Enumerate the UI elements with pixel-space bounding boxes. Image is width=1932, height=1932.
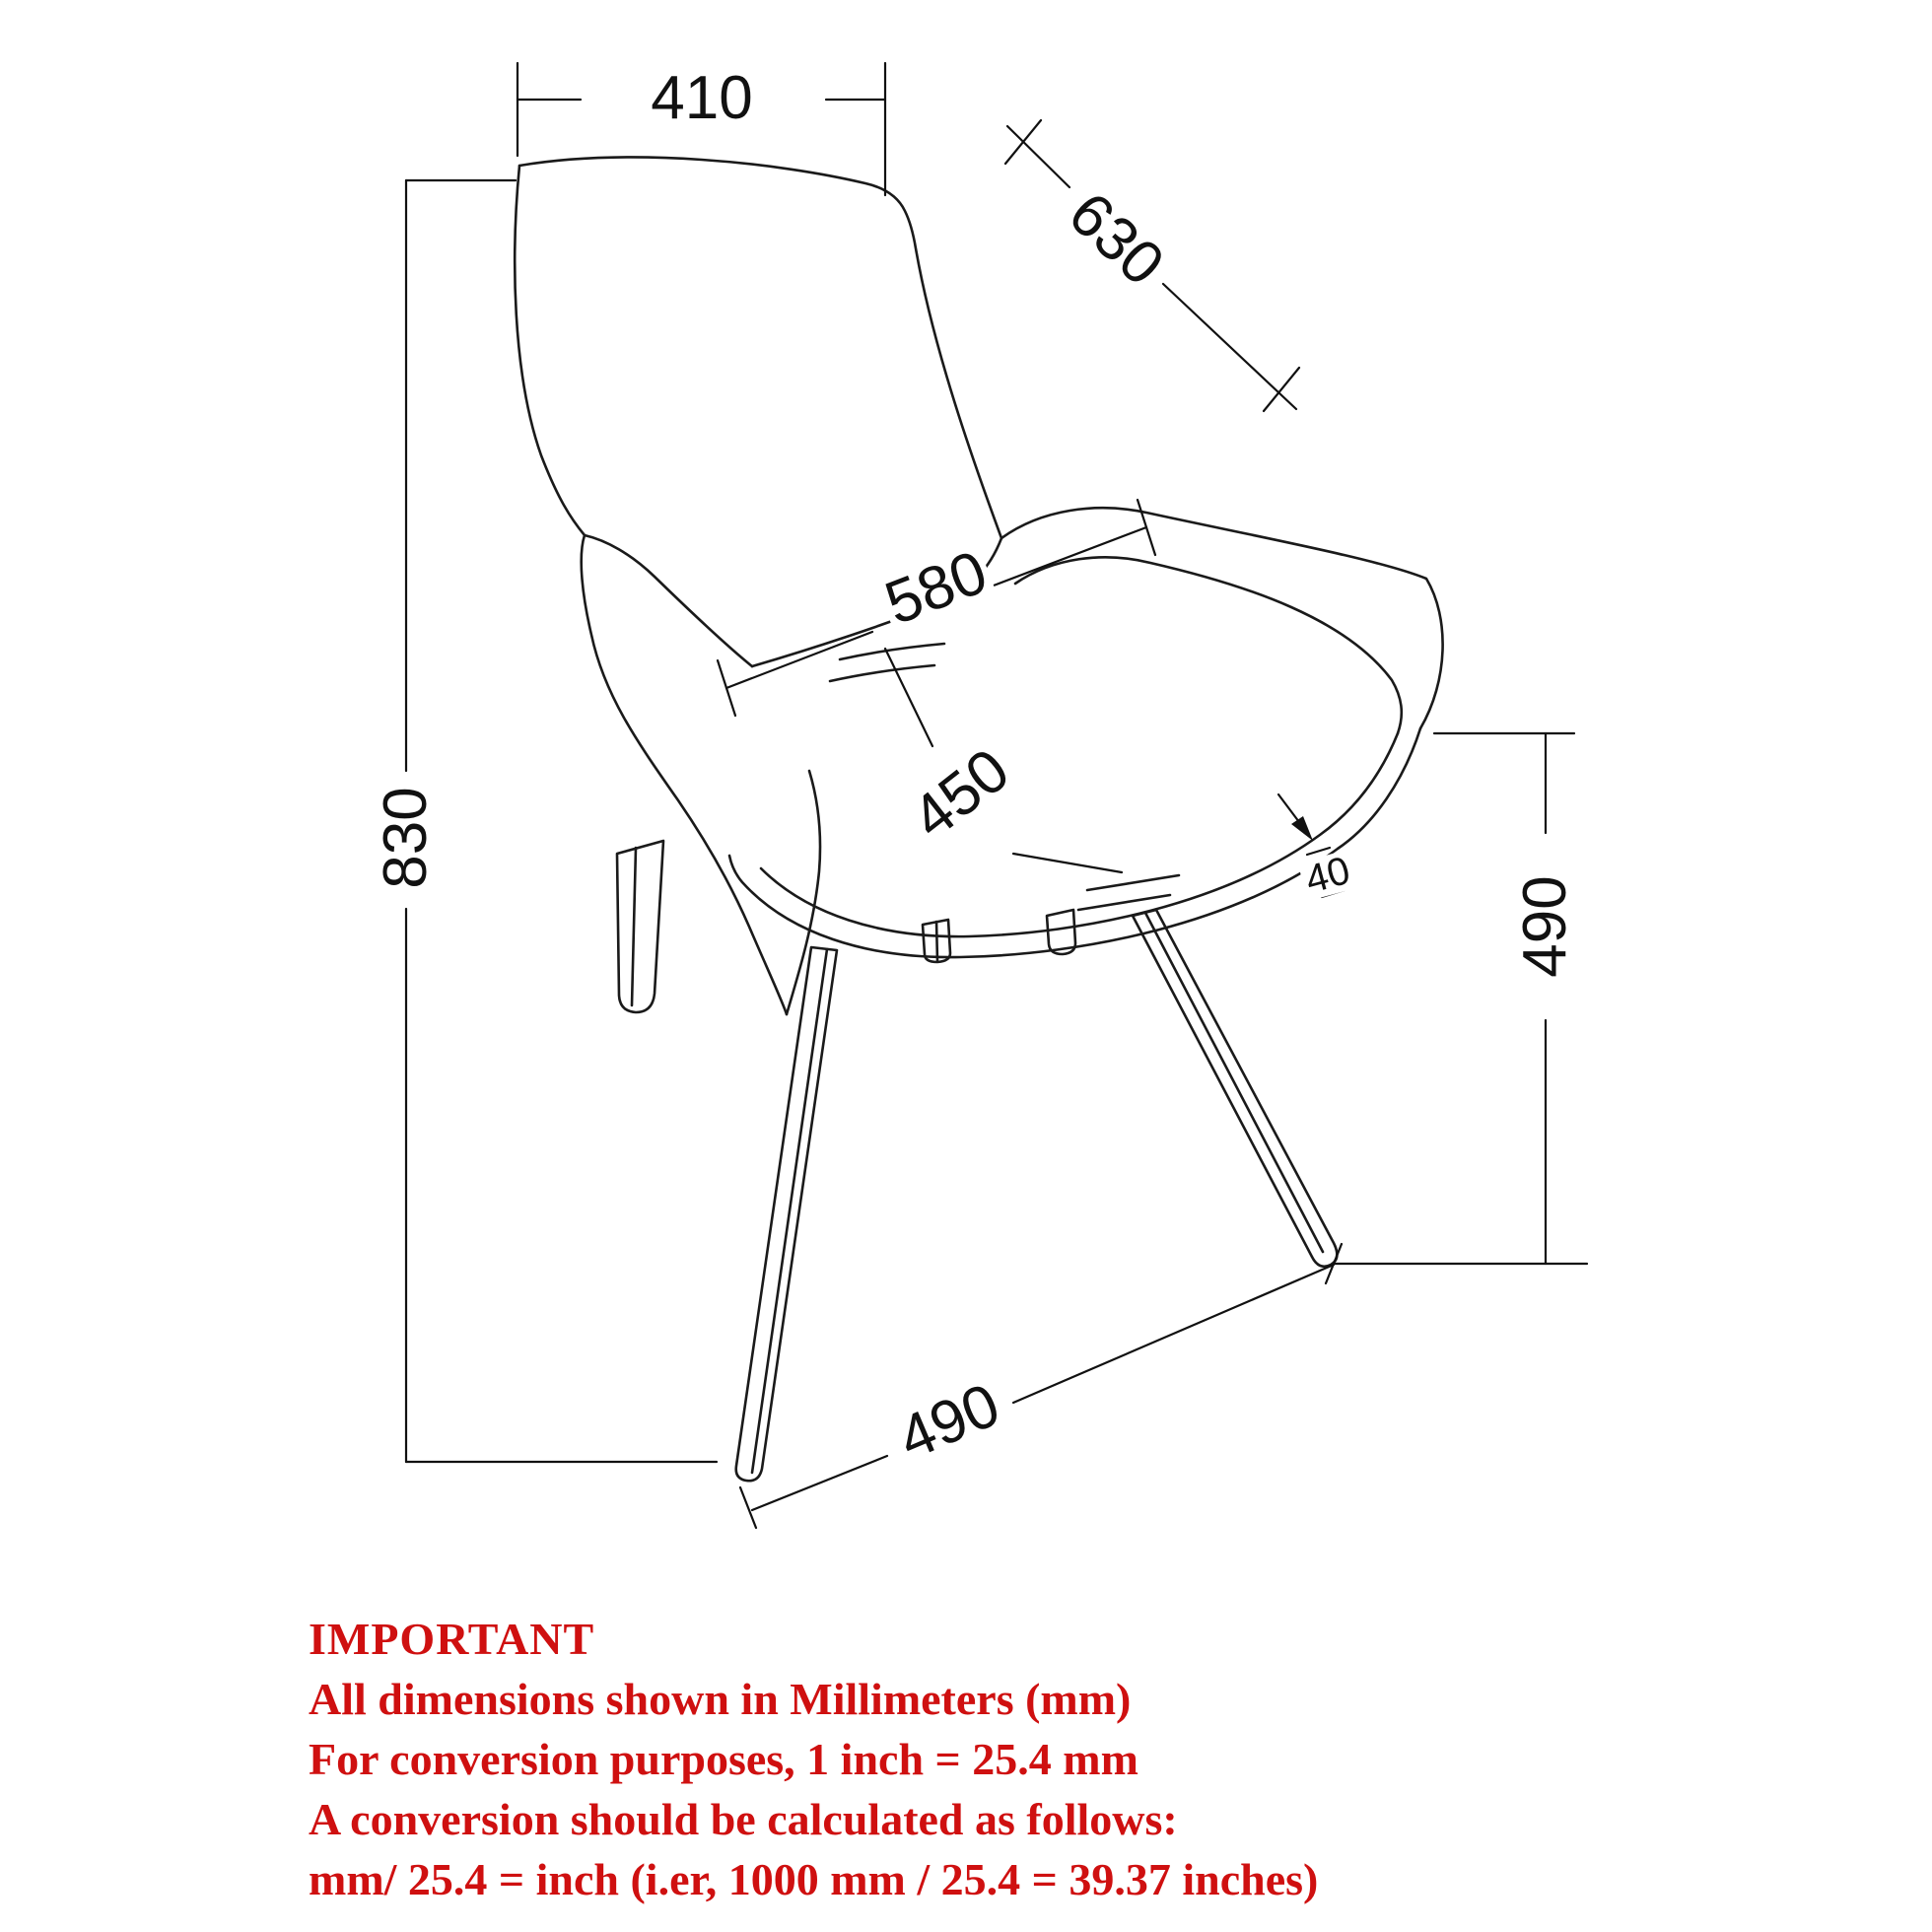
dim-450-line-upper	[885, 649, 932, 746]
dim-580-tick-left	[718, 660, 735, 716]
dim-label-seat-height: 490	[1515, 871, 1576, 981]
dim-630-tick-upper	[1005, 120, 1041, 164]
dim-490b-tick-left	[740, 1487, 756, 1528]
dimension-drawing-page: 410 630 580 450 830 490 40 490 IMPORTANT…	[0, 0, 1932, 1932]
dim-450-line-lower	[1013, 854, 1122, 872]
dim-630-line-lower	[1163, 284, 1296, 409]
dim-40-arrowhead	[1291, 816, 1313, 841]
dim-label-overall-height: 830	[376, 783, 437, 892]
dim-490b-line-right	[1013, 1265, 1334, 1403]
dim-580-line-left	[726, 632, 872, 688]
notes-heading: IMPORTANT	[309, 1609, 1787, 1669]
important-notes: IMPORTANT All dimensions shown in Millim…	[309, 1609, 1787, 1909]
notes-line-units: All dimensions shown in Millimeters (mm)	[309, 1669, 1787, 1729]
notes-line-conversion-factor: For conversion purposes, 1 inch = 25.4 m…	[309, 1729, 1787, 1789]
dim-580-tick-right	[1138, 500, 1155, 555]
dim-490b-line-left	[752, 1456, 887, 1510]
notes-line-conversion-method: A conversion should be calculated as fol…	[309, 1789, 1787, 1849]
notes-line-conversion-example: mm/ 25.4 = inch (i.er, 1000 mm / 25.4 = …	[309, 1849, 1787, 1909]
dim-630-tick-lower	[1264, 368, 1299, 411]
dim-label-backrest-top-width: 410	[647, 68, 756, 129]
dim-580-line-right	[994, 527, 1146, 586]
dim-630-line-upper	[1007, 126, 1069, 187]
